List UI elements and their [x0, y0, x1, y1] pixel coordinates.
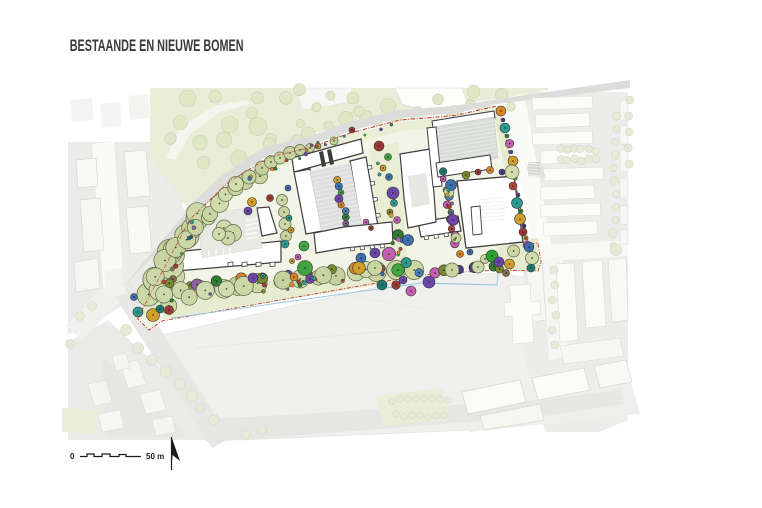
svg-text:BESTAANDE EN NIEUWE BOMEN: BESTAANDE EN NIEUWE BOMEN [70, 36, 244, 55]
svg-text:50 m: 50 m [146, 452, 164, 461]
svg-text:0: 0 [70, 452, 75, 461]
